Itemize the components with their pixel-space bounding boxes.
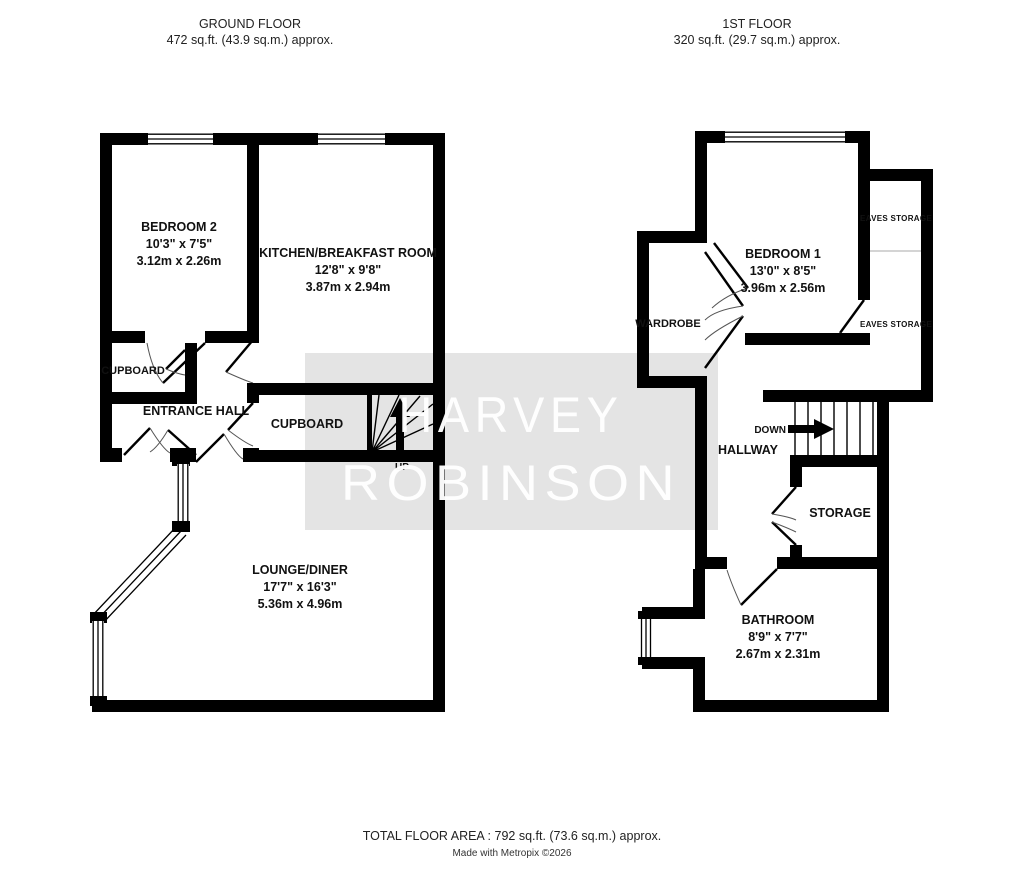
first-floor-header: 1ST FLOOR 320 sq.ft. (29.7 sq.m.) approx… <box>674 17 841 47</box>
ff-wardrobe-wall <box>637 376 707 388</box>
gf-room-divider-wall <box>247 133 259 337</box>
ff-left-wall <box>695 131 707 243</box>
first-floor-area: 320 sq.ft. (29.7 sq.m.) approx. <box>674 33 841 47</box>
room-label-wardrobe: WARDROBE <box>635 318 700 330</box>
room-label-hallway: HALLWAY <box>718 443 779 457</box>
room-dims-imperial: 12'8" x 9'8" <box>315 263 382 277</box>
first-floor-title: 1ST FLOOR <box>722 17 791 31</box>
room-label: BEDROOM 2 <box>141 220 217 234</box>
ff-divider-wall <box>777 557 889 569</box>
room-dims-metric: 2.67m x 2.31m <box>736 647 821 661</box>
room-dims-imperial: 17'7" x 16'3" <box>263 580 336 594</box>
gf-bedroom2-wall <box>100 331 145 343</box>
storage-door <box>772 487 796 545</box>
stairs-down-label: DOWN <box>754 425 786 436</box>
room-kitchen: KITCHEN/BREAKFAST ROOM 12'8" x 9'8" 3.87… <box>259 246 437 294</box>
bay-window-icon <box>90 458 190 706</box>
metropix-credit-label: Made with Metropix ©2026 <box>452 848 572 859</box>
window-icon <box>725 131 845 143</box>
wardrobe-bifold-door <box>705 252 743 368</box>
room-dims-imperial: 8'9" x 7'7" <box>748 630 808 644</box>
room-dims-metric: 3.96m x 2.56m <box>741 281 826 295</box>
room-label: BATHROOM <box>742 613 815 627</box>
down-arrow-icon <box>814 419 834 439</box>
floorplan-page: GROUND FLOOR 472 sq.ft. (43.9 sq.m.) app… <box>0 0 1024 891</box>
ground-floor-header: GROUND FLOOR 472 sq.ft. (43.9 sq.m.) app… <box>167 17 334 47</box>
room-dims-metric: 3.87m x 2.94m <box>306 280 391 294</box>
ff-divider-wall <box>695 557 727 569</box>
staircase-down: DOWN <box>754 390 933 467</box>
ff-storage-wall <box>790 545 802 557</box>
room-dims-imperial: 13'0" x 8'5" <box>750 264 817 278</box>
room-label: LOUNGE/DINER <box>252 563 348 577</box>
gf-left-wall <box>100 133 112 460</box>
gf-bottom-wall <box>92 700 445 712</box>
room-label-eaves-bottom: EAVES STORAGE <box>860 320 932 329</box>
room-bathroom: BATHROOM 8'9" x 7'7" 2.67m x 2.31m <box>736 613 821 661</box>
room-label-entrance-hall: ENTRANCE HALL <box>143 404 250 418</box>
ff-hallway-left-wall <box>695 388 707 569</box>
room-dims-metric: 5.36m x 4.96m <box>258 597 343 611</box>
ff-eaves-left-wall <box>858 181 870 300</box>
footer: TOTAL FLOOR AREA : 792 sq.ft. (73.6 sq.m… <box>363 829 662 859</box>
gf-wall-stub <box>100 448 122 462</box>
watermark-line2: ROBINSON <box>341 455 681 511</box>
room-dims-metric: 3.12m x 2.26m <box>137 254 222 268</box>
bedroom1-door <box>712 243 748 308</box>
ff-bathroom-wall <box>693 569 705 613</box>
ff-eaves-right-wall <box>921 169 933 402</box>
room-bedroom1: BEDROOM 1 13'0" x 8'5" 3.96m x 2.56m <box>741 247 826 295</box>
window-icon <box>318 133 385 145</box>
ground-floor-area: 472 sq.ft. (43.9 sq.m.) approx. <box>167 33 334 47</box>
gf-cupboard-left-wall <box>100 392 197 404</box>
room-label-cupboard-left: CUPBOARD <box>101 365 165 377</box>
room-dims-imperial: 10'3" x 7'5" <box>146 237 213 251</box>
room-bedroom2: BEDROOM 2 10'3" x 7'5" 3.12m x 2.26m <box>137 220 222 268</box>
room-lounge: LOUNGE/DINER 17'7" x 16'3" 5.36m x 4.96m <box>252 563 348 611</box>
ff-storage-wall <box>790 467 802 487</box>
floorplan-drawing: GROUND FLOOR 472 sq.ft. (43.9 sq.m.) app… <box>0 0 1024 891</box>
ff-wardrobe-wall <box>637 231 649 388</box>
ff-bedroom-bottom-wall <box>745 333 870 345</box>
watermark-line1: HARVEY <box>399 387 624 443</box>
kitchen-door <box>226 340 253 383</box>
room-label: KITCHEN/BREAKFAST ROOM <box>259 246 437 260</box>
lounge-door <box>196 434 243 462</box>
room-label-cupboard-center: CUPBOARD <box>271 417 343 431</box>
total-floor-area-label: TOTAL FLOOR AREA : 792 sq.ft. (73.6 sq.m… <box>363 829 662 843</box>
room-label-eaves-top: EAVES STORAGE <box>860 214 932 223</box>
window-icon <box>148 133 213 145</box>
ff-bathroom-bottom-wall <box>693 700 889 712</box>
room-label-storage: STORAGE <box>809 506 871 520</box>
ground-floor-title: GROUND FLOOR <box>199 17 301 31</box>
gf-cupboard-center-wall <box>247 395 259 403</box>
window-icon <box>638 611 655 665</box>
room-label: BEDROOM 1 <box>745 247 821 261</box>
gf-bedroom2-wall <box>205 331 259 343</box>
bathroom-door <box>727 569 777 605</box>
gf-cupboard-left-wall <box>185 343 197 392</box>
